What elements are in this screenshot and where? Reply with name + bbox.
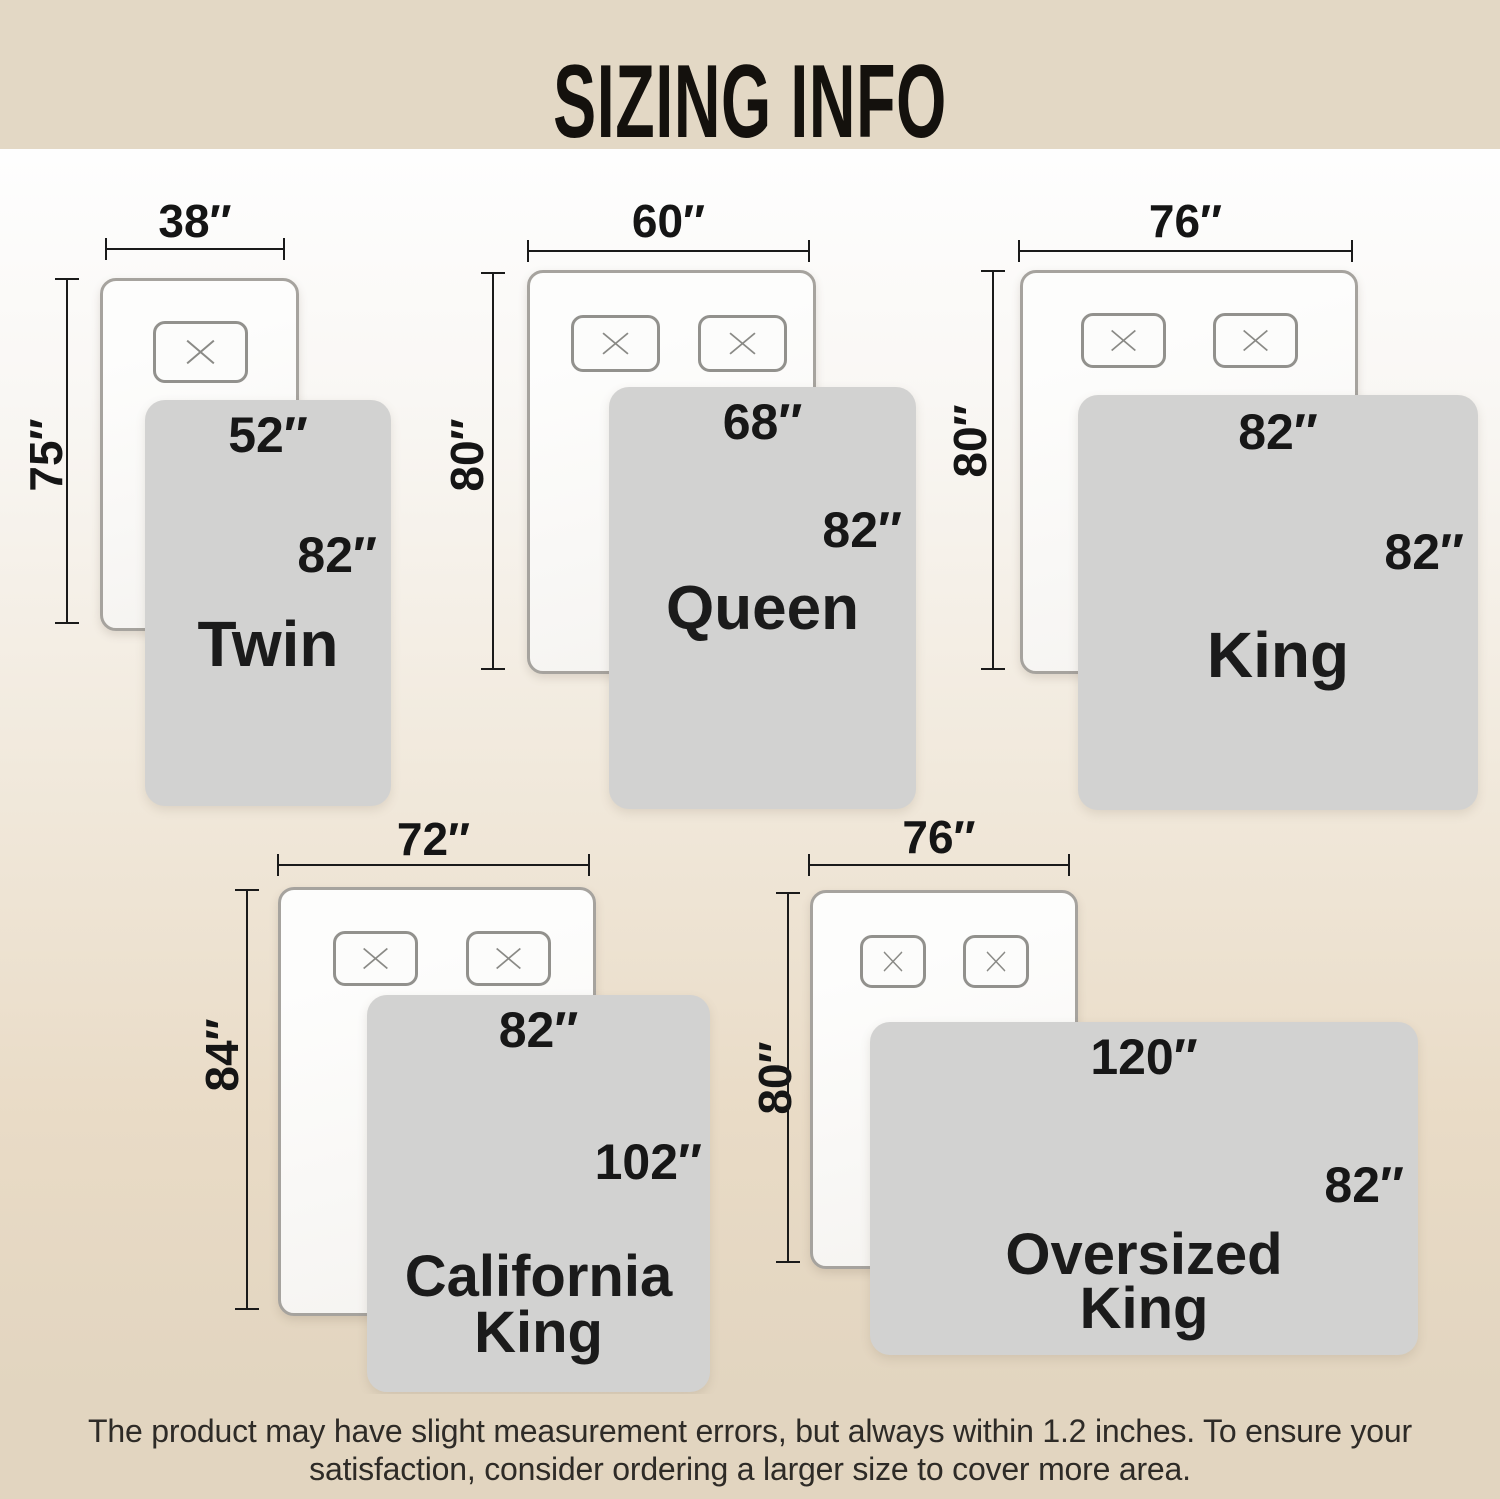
- blanket: 68″ 82″ Queen: [609, 387, 916, 809]
- size-name: Twin: [145, 614, 391, 674]
- blanket-width-label: 68″: [609, 397, 916, 447]
- disclaimer-footer: The product may have slight measurement …: [0, 1394, 1500, 1499]
- blanket-width-label: 82″: [367, 1005, 710, 1055]
- pillow-x-icon: [1216, 316, 1295, 365]
- blanket: 82″ 82″ King: [1078, 395, 1478, 810]
- pillow-icon: [153, 321, 248, 383]
- disclaimer-text: The product may have slight measurement …: [0, 1412, 1500, 1488]
- bed-length-label: 84″: [197, 1000, 247, 1110]
- blanket-length-label: 102″: [595, 1137, 702, 1187]
- blanket-length-label: 82″: [1384, 527, 1464, 577]
- bed-width-label: 38″: [105, 198, 285, 244]
- disclaimer-line-1: The product may have slight measurement …: [0, 1412, 1500, 1450]
- size-name: Queen: [609, 579, 916, 639]
- bed-width-label: 76″: [1018, 198, 1353, 244]
- bed-width-dimension-line: [277, 864, 590, 866]
- pillow-icon: [571, 315, 660, 372]
- blanket-length-label: 82″: [297, 530, 377, 580]
- bed-length-label: 80″: [945, 386, 995, 496]
- pillow-icon: [698, 315, 787, 372]
- title-banner: SIZING INFO: [0, 0, 1500, 150]
- size-name: Oversized King: [954, 1228, 1334, 1336]
- pillow-x-icon: [701, 318, 784, 369]
- pillow-x-icon: [1084, 316, 1163, 365]
- pillow-icon: [1213, 313, 1298, 368]
- bed-length-dimension-line: [66, 278, 68, 624]
- pillow-icon: [333, 931, 418, 986]
- blanket: 82″ 102″ California King: [367, 995, 710, 1392]
- pillow-icon: [1081, 313, 1166, 368]
- bed-length-dimension-line: [492, 272, 494, 670]
- bed-length-dimension-line: [787, 892, 789, 1263]
- bed-width-label: 72″: [277, 816, 590, 862]
- bed-length-label: 75″: [21, 400, 71, 510]
- bed-width-dimension-line: [105, 248, 285, 250]
- blanket-width-label: 120″: [870, 1032, 1418, 1082]
- bed-length-dimension-line: [246, 889, 248, 1310]
- blanket-length-label: 82″: [822, 505, 902, 555]
- bed-length-label: 80″: [750, 1023, 800, 1133]
- blanket-length-label: 82″: [1324, 1160, 1404, 1210]
- blanket-width-label: 82″: [1078, 407, 1478, 457]
- bed-width-dimension-line: [527, 250, 810, 252]
- size-name: King: [1078, 625, 1478, 685]
- pillow-x-icon: [966, 938, 1026, 985]
- blanket-width-label: 52″: [145, 410, 391, 460]
- pillow-x-icon: [336, 934, 415, 983]
- sizing-infographic: SIZING INFO 38″ 75″ 52″ 82″ Twin 60″ 80″: [0, 0, 1500, 1499]
- pillow-x-icon: [156, 324, 245, 380]
- blanket: 120″ 82″ Oversized King: [870, 1022, 1418, 1355]
- bed-length-dimension-line: [992, 270, 994, 670]
- bed-width-dimension-line: [1018, 250, 1353, 252]
- disclaimer-line-2: satisfaction, consider ordering a larger…: [0, 1450, 1500, 1488]
- bed-width-label: 60″: [527, 198, 810, 244]
- size-name: California King: [374, 1249, 704, 1361]
- pillow-x-icon: [469, 934, 548, 983]
- pillow-icon: [466, 931, 551, 986]
- pillow-icon: [860, 935, 926, 988]
- blanket: 52″ 82″ Twin: [145, 400, 391, 806]
- bed-width-dimension-line: [808, 864, 1070, 866]
- bed-length-label: 80″: [442, 400, 492, 510]
- page-title: SIZING INFO: [285, 50, 1215, 154]
- pillow-x-icon: [574, 318, 657, 369]
- bed-width-label: 76″: [808, 814, 1070, 860]
- pillow-icon: [963, 935, 1029, 988]
- pillow-x-icon: [863, 938, 923, 985]
